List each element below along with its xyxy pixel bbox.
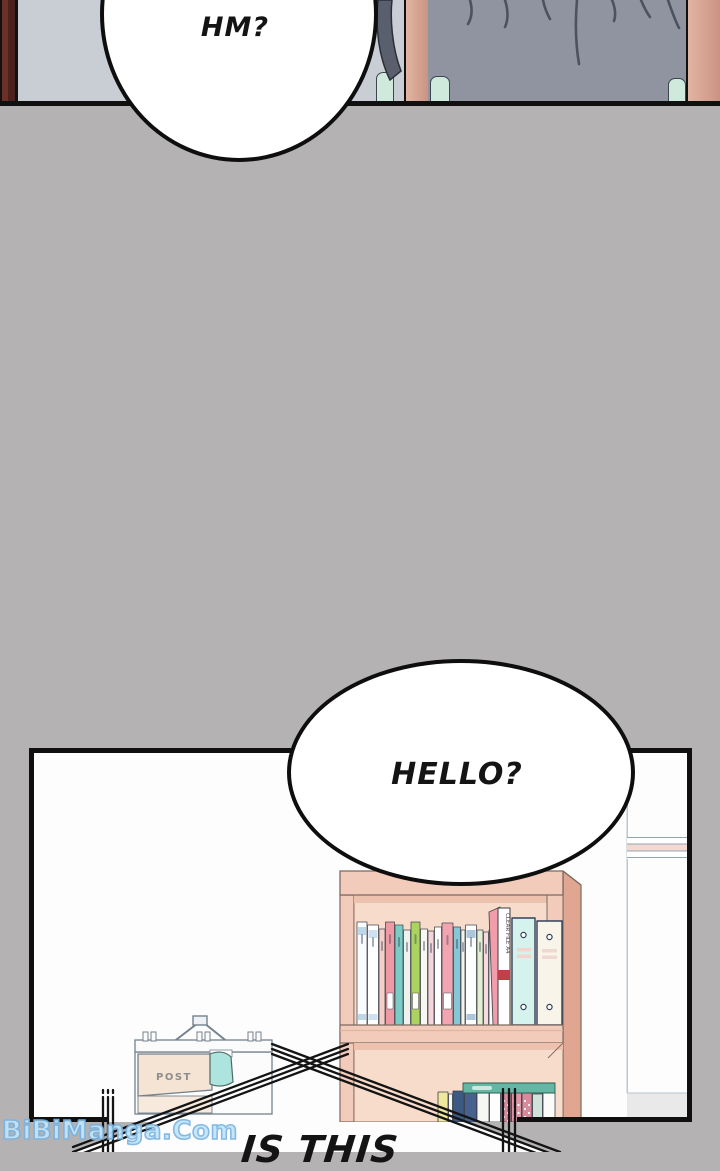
wall-trim-pink	[627, 845, 687, 852]
book-spine	[477, 1092, 489, 1122]
watermark: BiBiManga.Com	[2, 1116, 238, 1146]
letter-paper	[210, 1052, 233, 1086]
post-box-rail	[135, 1040, 272, 1052]
post-box: POST	[135, 1016, 272, 1114]
flat-book	[463, 1083, 555, 1093]
panel-border-bottom-right-segment	[517, 1117, 692, 1122]
post-box-lower	[138, 1096, 212, 1113]
top-shelf-books	[357, 922, 493, 1025]
clear-file-label: CLEAR FILE A4	[504, 913, 510, 954]
binder-hole	[547, 934, 552, 939]
hair-strand-lines	[468, 0, 679, 64]
panel-border-left	[29, 748, 34, 1122]
binder-spine-text-mark	[542, 956, 557, 960]
speech-text-hm: HM?	[100, 12, 370, 43]
comic-page: { "bubbles": { "hm": "HM?", "hello": "HE…	[0, 0, 720, 1152]
panel-border-right	[687, 748, 692, 1122]
binder-cyan	[512, 918, 535, 1025]
cavity-shadow	[354, 895, 547, 903]
bookshelf: CLEAR FILE A4	[340, 871, 581, 1122]
binder-hole	[547, 1004, 552, 1009]
binder-spine-text-mark	[517, 955, 531, 959]
book-spine	[501, 1093, 511, 1122]
bookshelf-side-panel	[563, 871, 581, 1122]
shelf-board	[340, 1025, 563, 1043]
book-spine	[453, 1091, 464, 1122]
binder-spine-text-mark	[517, 948, 531, 952]
binder-white	[537, 921, 562, 1025]
clear-file: CLEAR FILE A4	[498, 908, 510, 1025]
clear-file-red-band	[498, 970, 510, 980]
book-spine	[490, 1090, 501, 1122]
binder-hole	[521, 932, 526, 937]
cavity-shadow	[354, 1043, 563, 1050]
post-label: POST	[156, 1072, 192, 1083]
speech-text-hello: HELLO?	[287, 757, 627, 792]
book-spine	[449, 1094, 453, 1122]
hair-wisp	[377, 0, 401, 80]
binder-spine-text-mark	[542, 949, 557, 953]
flat-book-label-mark	[472, 1086, 492, 1090]
binder-hole	[521, 1004, 526, 1009]
book-spine	[465, 1091, 477, 1122]
bookshelf-left-post	[340, 895, 354, 1122]
book-spine	[438, 1092, 448, 1122]
